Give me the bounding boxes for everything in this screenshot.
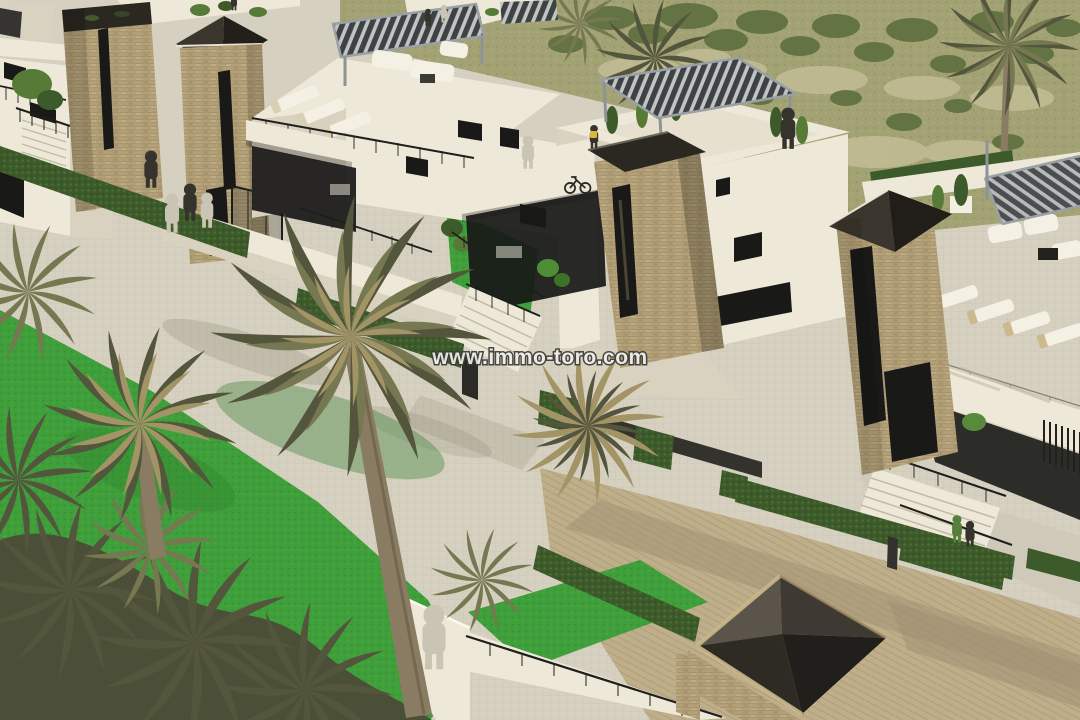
tower-d-door: [884, 362, 938, 462]
bottom-fence: [887, 536, 898, 570]
render-image: www.immo-toro.com: [0, 0, 1080, 720]
watermark-text: www.immo-toro.com: [431, 346, 647, 369]
garden-shrub: [441, 219, 463, 237]
small-pergola-roof: [500, 0, 558, 24]
stone-pillar: [676, 652, 700, 720]
render-stage: www.immo-toro.com: [0, 0, 1080, 720]
interior-plant: [537, 259, 559, 277]
hi-vis-vest: [590, 131, 597, 138]
